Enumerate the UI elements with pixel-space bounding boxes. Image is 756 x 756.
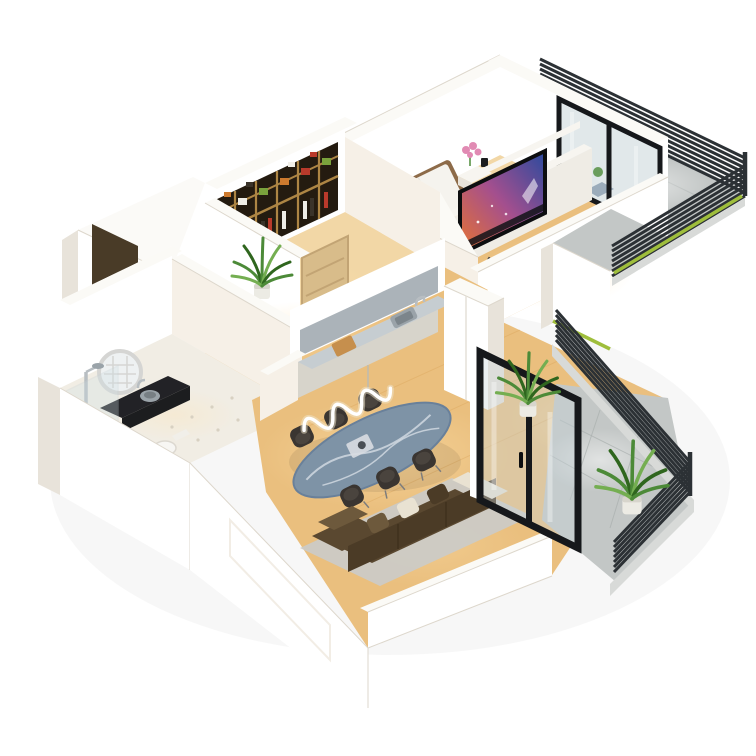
slider-handle bbox=[519, 452, 523, 468]
apartment-3d-scene bbox=[0, 0, 756, 756]
floorplan-render: 3D isometric apartment floor plan render bbox=[0, 0, 756, 756]
bedside-clock bbox=[481, 158, 488, 167]
